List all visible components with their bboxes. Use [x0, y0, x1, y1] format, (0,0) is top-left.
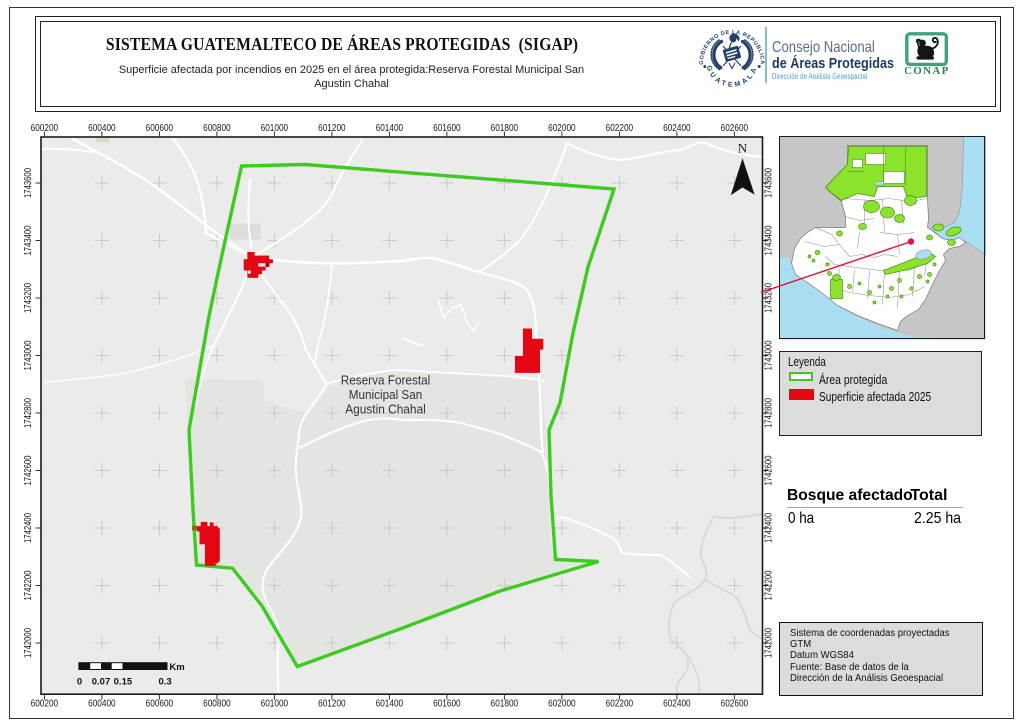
svg-text:1743600: 1743600 [764, 168, 775, 198]
svg-text:601000: 601000 [261, 123, 289, 134]
svg-text:602400: 602400 [663, 123, 691, 134]
svg-text:1743400: 1743400 [764, 225, 775, 255]
svg-text:1742200: 1742200 [764, 570, 775, 600]
svg-text:Municipal San: Municipal San [349, 388, 423, 402]
svg-text:1742000: 1742000 [764, 628, 775, 658]
svg-text:602400: 602400 [663, 699, 691, 710]
svg-text:600800: 600800 [203, 699, 231, 710]
svg-text:0: 0 [77, 677, 82, 688]
svg-text:600200: 600200 [31, 699, 59, 710]
svg-text:602600: 602600 [721, 123, 749, 134]
svg-text:601800: 601800 [491, 699, 519, 710]
svg-text:1742200: 1742200 [23, 570, 34, 600]
svg-text:1743000: 1743000 [764, 340, 775, 370]
svg-text:1742600: 1742600 [23, 455, 34, 485]
svg-text:0.07: 0.07 [92, 677, 111, 688]
svg-text:601200: 601200 [318, 123, 346, 134]
svg-text:602600: 602600 [721, 699, 749, 710]
svg-text:600400: 600400 [88, 699, 116, 710]
svg-text:1742600: 1742600 [764, 455, 775, 485]
svg-text:600400: 600400 [88, 123, 116, 134]
svg-text:602000: 602000 [548, 699, 576, 710]
svg-text:600200: 600200 [31, 123, 59, 134]
svg-text:1743400: 1743400 [23, 225, 34, 255]
svg-text:601000: 601000 [261, 699, 289, 710]
svg-text:1742000: 1742000 [23, 628, 34, 658]
svg-text:601400: 601400 [376, 123, 404, 134]
svg-text:1743200: 1743200 [764, 283, 775, 313]
svg-text:0.3: 0.3 [158, 677, 171, 688]
svg-text:1742400: 1742400 [764, 513, 775, 543]
svg-text:602200: 602200 [606, 699, 634, 710]
svg-text:1743600: 1743600 [23, 168, 34, 198]
svg-text:1743000: 1743000 [23, 340, 34, 370]
svg-text:601600: 601600 [433, 699, 461, 710]
svg-text:CONAP: CONAP [905, 65, 950, 76]
svg-text:601800: 601800 [491, 123, 519, 134]
svg-text:600600: 600600 [146, 699, 174, 710]
svg-text:Agustin Chahal: Agustin Chahal [345, 403, 426, 417]
svg-text:Reserva Forestal: Reserva Forestal [341, 374, 431, 388]
svg-text:602000: 602000 [548, 123, 576, 134]
svg-text:601400: 601400 [376, 699, 404, 710]
svg-text:Km: Km [169, 662, 184, 673]
svg-text:601600: 601600 [433, 123, 461, 134]
svg-text:0.15: 0.15 [114, 677, 133, 688]
svg-text:600600: 600600 [146, 123, 174, 134]
svg-text:N: N [738, 141, 748, 156]
svg-text:1742800: 1742800 [23, 398, 34, 428]
svg-text:602200: 602200 [606, 123, 634, 134]
svg-text:1742400: 1742400 [23, 513, 34, 543]
svg-text:1742800: 1742800 [764, 398, 775, 428]
svg-text:600800: 600800 [203, 123, 231, 134]
svg-text:1743200: 1743200 [23, 283, 34, 313]
svg-text:601200: 601200 [318, 699, 346, 710]
